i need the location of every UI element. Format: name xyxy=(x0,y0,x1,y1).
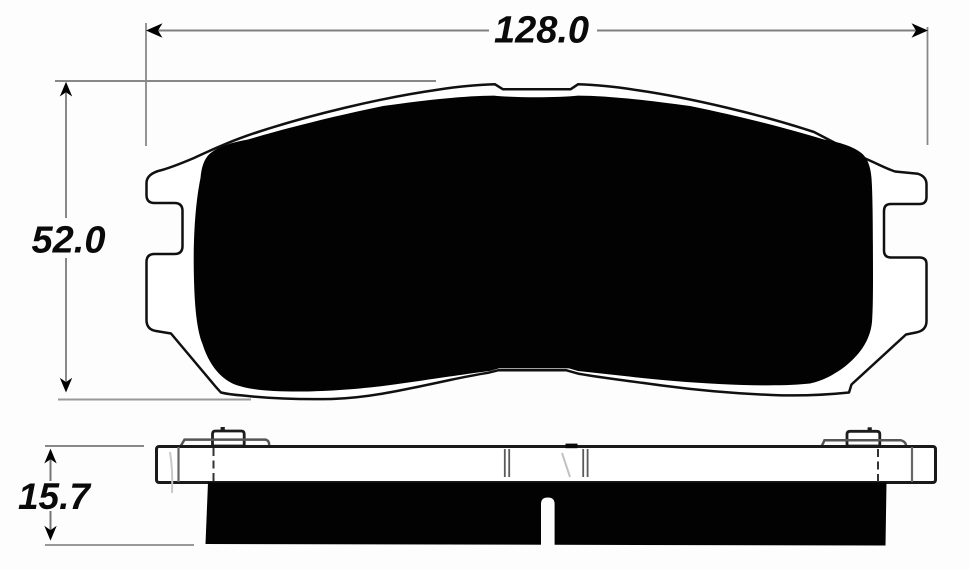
svg-text:52.0: 52.0 xyxy=(32,220,106,262)
svg-text:128.0: 128.0 xyxy=(494,10,589,52)
svg-text:15.7: 15.7 xyxy=(18,476,92,517)
